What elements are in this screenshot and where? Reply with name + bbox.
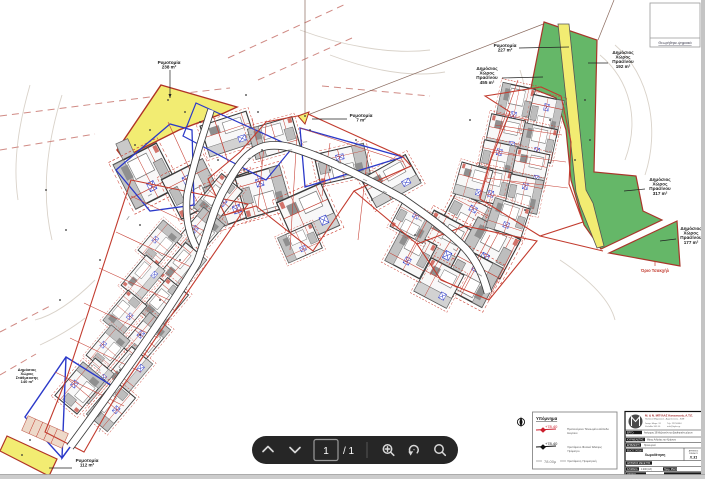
svg-text:1: 1 [323, 446, 329, 457]
svg-text:Υψόμετρο: Υψόμετρο [567, 449, 580, 453]
svg-text:ΚΛΙΜΑΚΑ: ΚΛΙΜΑΚΑ [627, 468, 638, 471]
svg-text:Χαλκίδα 341 00: Χαλκίδα 341 00 [645, 425, 661, 428]
svg-text:Χ.31: Χ.31 [689, 456, 697, 460]
svg-text:Υφιστάμενη Υψομετρική: Υφιστάμενη Υψομετρική [567, 459, 597, 463]
svg-text:ΕΙΔΟΣ ΣΧΕΔΙΟΥ: ΕΙΔΟΣ ΣΧΕΔΙΟΥ [627, 449, 645, 452]
svg-text:Θεωρήθηκε.ψηφιακά: Θεωρήθηκε.ψηφιακά [658, 41, 691, 45]
svg-text:/ 1: / 1 [343, 446, 355, 457]
svg-text:Πολιτικοί Μηχανικοί - Αρχιτέκτ: Πολιτικοί Μηχανικοί - Αρχιτέκτονες - ΕΔΕ [645, 418, 685, 421]
svg-text:Υπόμνημα: Υπόμνημα [536, 416, 558, 421]
svg-text:Μ. & Ν. ΜΠΥΛΑΣ Κατασκευές Α.Τ.: Μ. & Ν. ΜΠΥΛΑΣ Κατασκευές Α.Τ.Ε. [645, 414, 693, 418]
svg-text:Τηλ: 22210664: Τηλ: 22210664 [667, 423, 682, 425]
svg-text:ΚΥΡ.ΜΕΛΕΤΗΣ: ΚΥΡ.ΜΕΛΕΤΗΣ [627, 439, 644, 442]
svg-text:78.00μ: 78.00μ [544, 459, 557, 464]
svg-text:info@bylas.gr: info@bylas.gr [667, 425, 681, 428]
svg-text:ΑΡΙΘΜΟΣ ΜΕΛΕΤΗΣ: ΑΡΙΘΜΟΣ ΜΕΛΕΤΗΣ [627, 462, 651, 465]
svg-text:+78.40: +78.40 [545, 424, 558, 429]
svg-text:Ανέγερση 19 Μεζονετών και βοηθ: Ανέγερση 19 Μεζονετών και βοηθητικών χώρ… [644, 432, 694, 435]
svg-text:Όριο Τσακχήλ: Όριο Τσακχήλ [640, 268, 670, 273]
svg-text:Χωροθέτηση: Χωροθέτηση [645, 453, 666, 457]
svg-text:1:200 (Α3): 1:200 (Α3) [641, 468, 652, 471]
svg-text:Ισογείου: Ισογείου [567, 431, 578, 435]
svg-text:ΕΡΓΟ:: ΕΡΓΟ: [627, 432, 634, 435]
svg-text:Λεωφ. Μαρκ. 31: Λεωφ. Μαρκ. 31 [645, 422, 662, 425]
svg-text:ΕΠΙΒΛΕΨΗ: ΕΠΙΒΛΕΨΗ [627, 444, 640, 447]
svg-text:Μάιος Ανδρέας του Χρήστου: Μάιος Ανδρέας του Χρήστου [647, 439, 677, 442]
svg-text:Προσωρινό: Προσωρινό [644, 444, 656, 447]
svg-text:+78.40: +78.40 [545, 441, 558, 446]
svg-text:Ημερ. 05/24: Ημερ. 05/24 [664, 468, 678, 471]
